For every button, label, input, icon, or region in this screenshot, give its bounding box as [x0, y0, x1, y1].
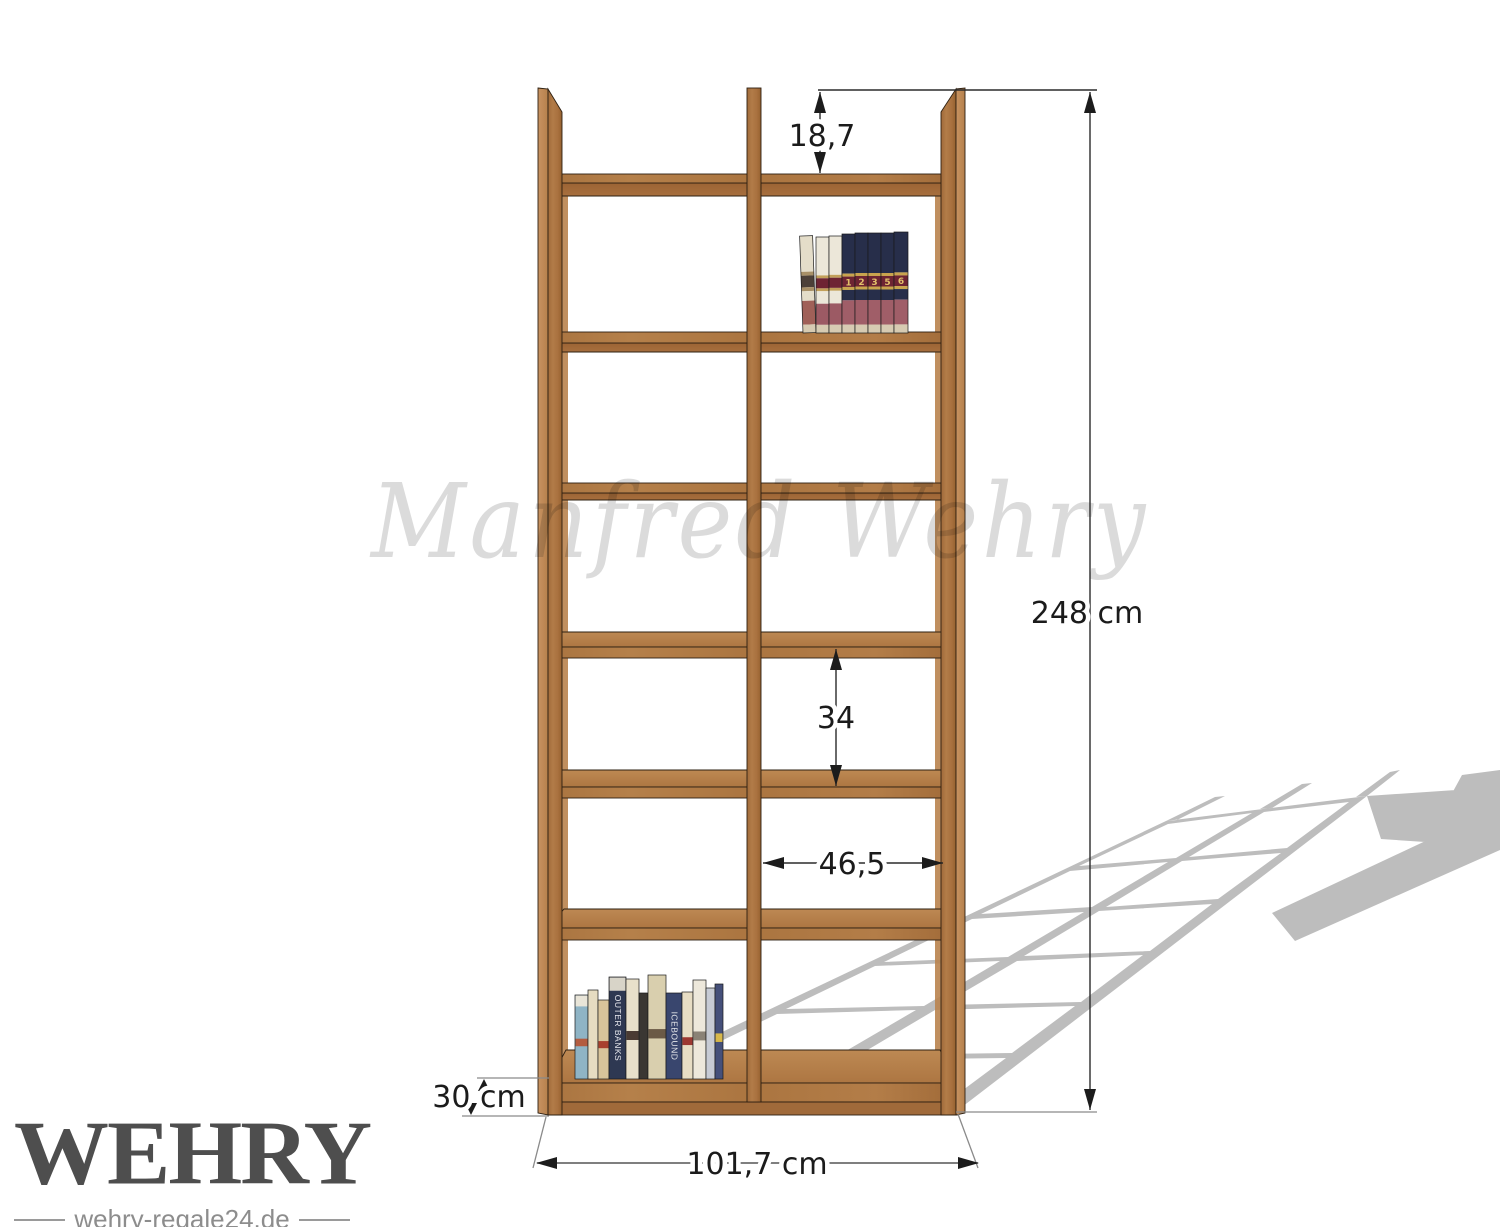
paperback-books: OUTER BANKSICEBOUND — [575, 975, 723, 1079]
book-spine: OUTER BANKS — [609, 977, 626, 1079]
post-left-front-face — [548, 89, 562, 1115]
tagline-dash-left — [14, 1219, 65, 1221]
book-spine — [706, 988, 715, 1079]
plinth — [548, 1102, 958, 1115]
book-spine — [639, 993, 648, 1079]
dim-compartment-height: 34 — [817, 701, 855, 736]
book-spine — [575, 995, 588, 1079]
book-spine: 5 — [881, 233, 894, 333]
book-spine — [816, 237, 829, 333]
dim-total-width: 101,7 cm — [686, 1147, 827, 1182]
dim-depth: 30 cm — [432, 1080, 525, 1115]
dim-compartment-width: 46,5 — [819, 847, 886, 882]
book-spine: 2 — [855, 233, 868, 333]
book-spine — [648, 975, 666, 1079]
volume-number: 2 — [858, 278, 864, 288]
book-spine: 1 — [842, 234, 855, 333]
book-spine — [715, 984, 723, 1079]
brand-logo: WEHRY wehry-regale24.de — [14, 1106, 350, 1227]
encyclopedia-books: 12356 — [800, 232, 908, 333]
post-center — [747, 88, 761, 1102]
book-spine — [800, 236, 816, 333]
brand-name: WEHRY — [14, 1108, 350, 1199]
watermark-text: Manfred Wehry — [369, 462, 1149, 582]
volume-number: 1 — [845, 278, 851, 288]
post-right-front-face — [941, 89, 956, 1115]
brand-tagline: wehry-regale24.de — [14, 1204, 350, 1227]
product-illustration: 12356 OUTER BANKSICEBOUND Manfred Wehry — [0, 0, 1500, 1227]
book-spine — [682, 992, 693, 1079]
volume-number: 6 — [898, 277, 904, 287]
volume-number: 3 — [871, 278, 877, 288]
book-spine: 6 — [894, 232, 908, 333]
book-spine — [598, 1000, 609, 1079]
book-spine — [588, 990, 598, 1079]
post-right-side-face — [956, 88, 965, 1115]
dim-total-height: 248 cm — [1031, 596, 1144, 631]
book-spine: 3 — [868, 233, 881, 333]
book-title: ICEBOUND — [670, 1012, 680, 1061]
book-title: OUTER BANKS — [613, 995, 623, 1061]
dim-top-clearance: 18,7 — [789, 119, 856, 154]
bookshelf-drawing: 12356 OUTER BANKSICEBOUND Manfred Wehry — [0, 0, 1500, 1227]
tagline-text: wehry-regale24.de — [74, 1204, 289, 1227]
book-spine: ICEBOUND — [666, 993, 682, 1079]
tagline-dash-right — [299, 1219, 350, 1221]
book-spine — [626, 979, 639, 1079]
volume-number: 5 — [884, 278, 890, 288]
book-spine — [693, 980, 706, 1079]
book-spine — [829, 236, 842, 333]
post-left-side-face — [538, 88, 548, 1115]
